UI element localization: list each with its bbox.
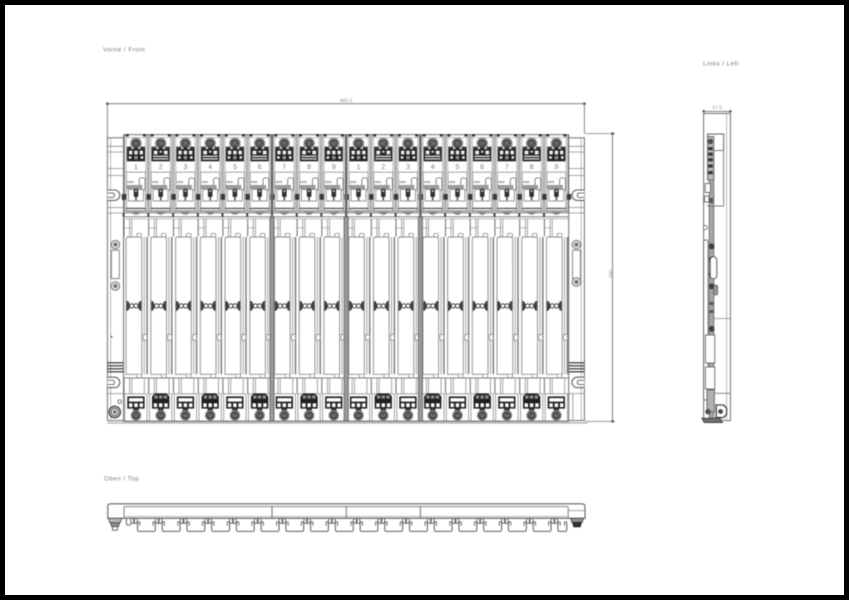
svg-text:2: 2 [159, 164, 163, 171]
svg-text:3: 3 [183, 164, 187, 171]
svg-text:8: 8 [530, 164, 534, 171]
svg-text:8: 8 [307, 164, 311, 171]
svg-text:483.5: 483.5 [340, 98, 353, 104]
svg-text:Links / Left: Links / Left [703, 61, 739, 68]
svg-text:3: 3 [406, 164, 410, 171]
svg-text:Vorne / Front: Vorne / Front [103, 47, 145, 54]
svg-text:6: 6 [258, 164, 262, 171]
svg-text:1: 1 [357, 164, 361, 171]
svg-text:4: 4 [431, 164, 435, 171]
svg-text:290: 290 [609, 270, 615, 279]
svg-text:5: 5 [233, 164, 237, 171]
svg-text:5: 5 [456, 164, 460, 171]
svg-text:17.5: 17.5 [712, 105, 722, 111]
svg-text:Oben / Top: Oben / Top [104, 476, 139, 483]
svg-text:9: 9 [554, 164, 558, 171]
svg-text:1: 1 [134, 164, 138, 171]
svg-text:9: 9 [332, 164, 336, 171]
svg-text:4: 4 [208, 164, 212, 171]
svg-text:7: 7 [282, 164, 286, 171]
svg-text:2: 2 [381, 164, 385, 171]
svg-text:7: 7 [505, 164, 509, 171]
svg-text:6: 6 [480, 164, 484, 171]
